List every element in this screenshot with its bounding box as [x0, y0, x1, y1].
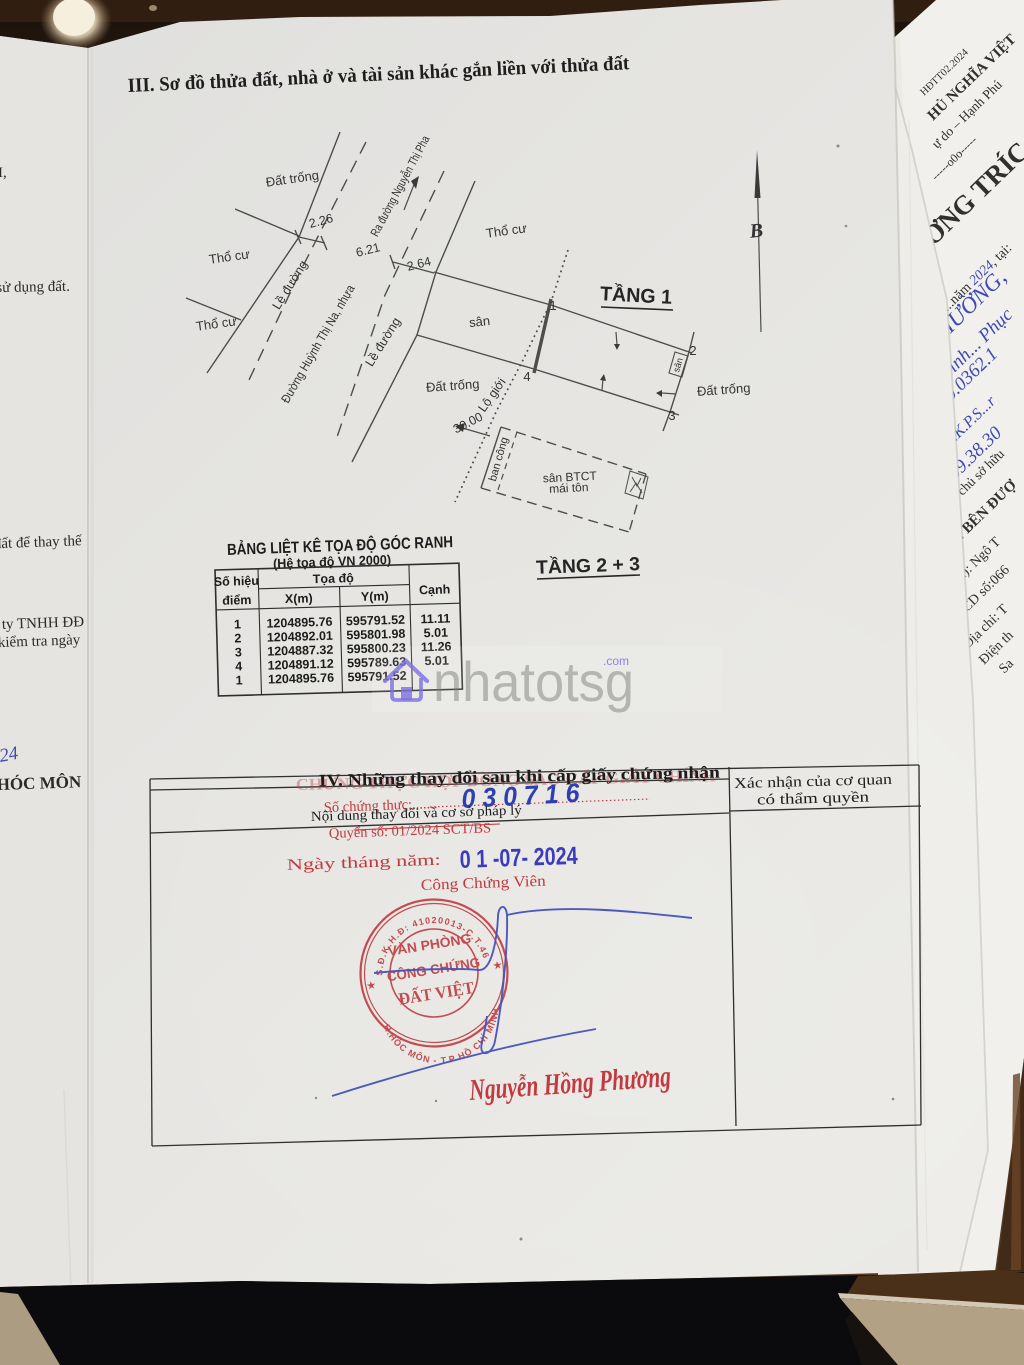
- svg-text:TẦNG 1: TẦNG 1: [599, 282, 672, 309]
- svg-text:3: 3: [668, 408, 675, 423]
- svg-text:Số hiệu: Số hiệu: [214, 574, 260, 589]
- svg-text:2: 2: [234, 631, 241, 645]
- svg-text:★: ★: [365, 979, 377, 992]
- svg-text:1: 1: [235, 673, 242, 687]
- svg-text:Y(m): Y(m): [361, 589, 389, 604]
- svg-text:1204895.76: 1204895.76: [268, 671, 334, 687]
- svg-text:Cạnh: Cạnh: [419, 582, 451, 597]
- svg-text:Tọa độ: Tọa độ: [313, 571, 355, 586]
- svg-text:sân: sân: [468, 313, 490, 330]
- svg-text:3: 3: [235, 645, 242, 659]
- svg-text:0 1 -07- 2024: 0 1 -07- 2024: [459, 842, 578, 874]
- svg-text:Ị HÓC MÔN: Ị HÓC MÔN: [0, 772, 82, 794]
- svg-text:11.11: 11.11: [420, 611, 450, 626]
- svg-text:2: 2: [689, 343, 696, 358]
- svg-text:ả sử dụng đất.: ả sử dụng đất.: [0, 279, 70, 296]
- svg-text:điểm: điểm: [222, 593, 252, 608]
- svg-text:ty TNHH ĐĐ: ty TNHH ĐĐ: [2, 614, 85, 633]
- svg-text:có thẩm quyền: có thẩm quyền: [757, 790, 870, 809]
- svg-text:1: 1: [234, 617, 241, 631]
- svg-text:.com: .com: [603, 654, 629, 668]
- svg-text:5.01: 5.01: [423, 626, 448, 641]
- svg-text:★: ★: [492, 959, 504, 972]
- svg-text:X(m): X(m): [285, 591, 313, 606]
- svg-text:đất để thay thế: đất để thay thế: [0, 533, 82, 552]
- svg-text:kiểm tra ngày: kiểm tra ngày: [0, 632, 81, 651]
- svg-text:B: B: [748, 219, 765, 242]
- svg-text:mái tôn: mái tôn: [549, 480, 589, 496]
- svg-text:4: 4: [235, 659, 242, 673]
- svg-text:4: 4: [523, 369, 530, 384]
- svg-text:I,: I,: [0, 165, 7, 181]
- svg-text:1: 1: [549, 298, 556, 313]
